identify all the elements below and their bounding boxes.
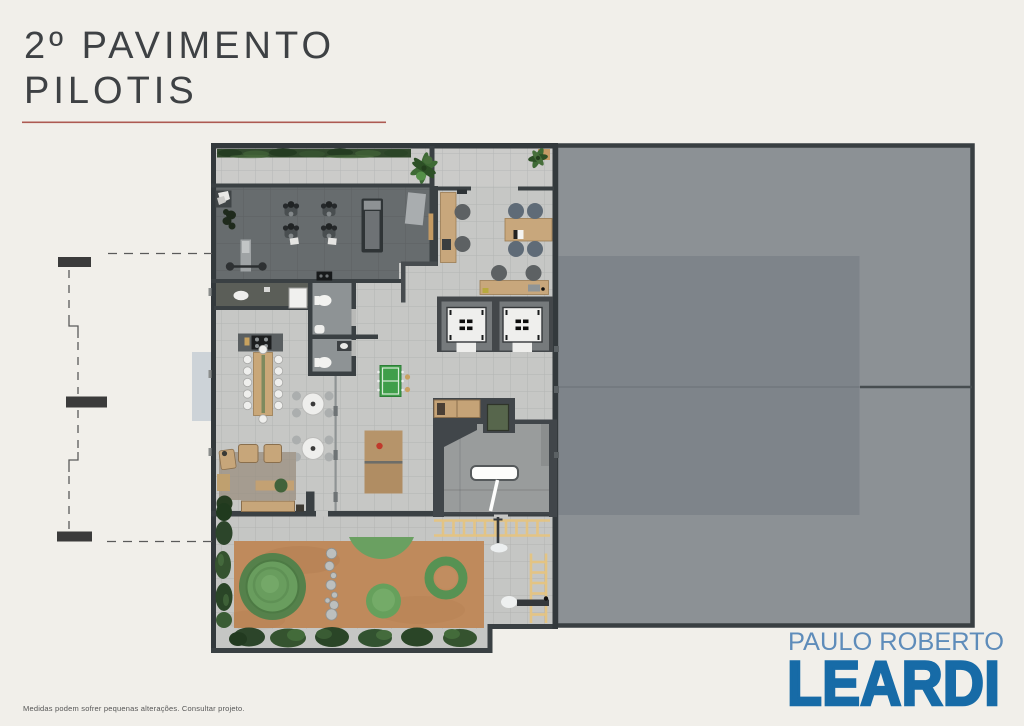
svg-text:2º PAVIMENTO: 2º PAVIMENTO [24, 25, 335, 67]
svg-text:PILOTIS: PILOTIS [24, 70, 198, 112]
svg-text:LEARDI: LEARDI [787, 649, 1000, 719]
svg-text:Medidas podem sofrer pequenas: Medidas podem sofrer pequenas alterações… [23, 704, 245, 713]
